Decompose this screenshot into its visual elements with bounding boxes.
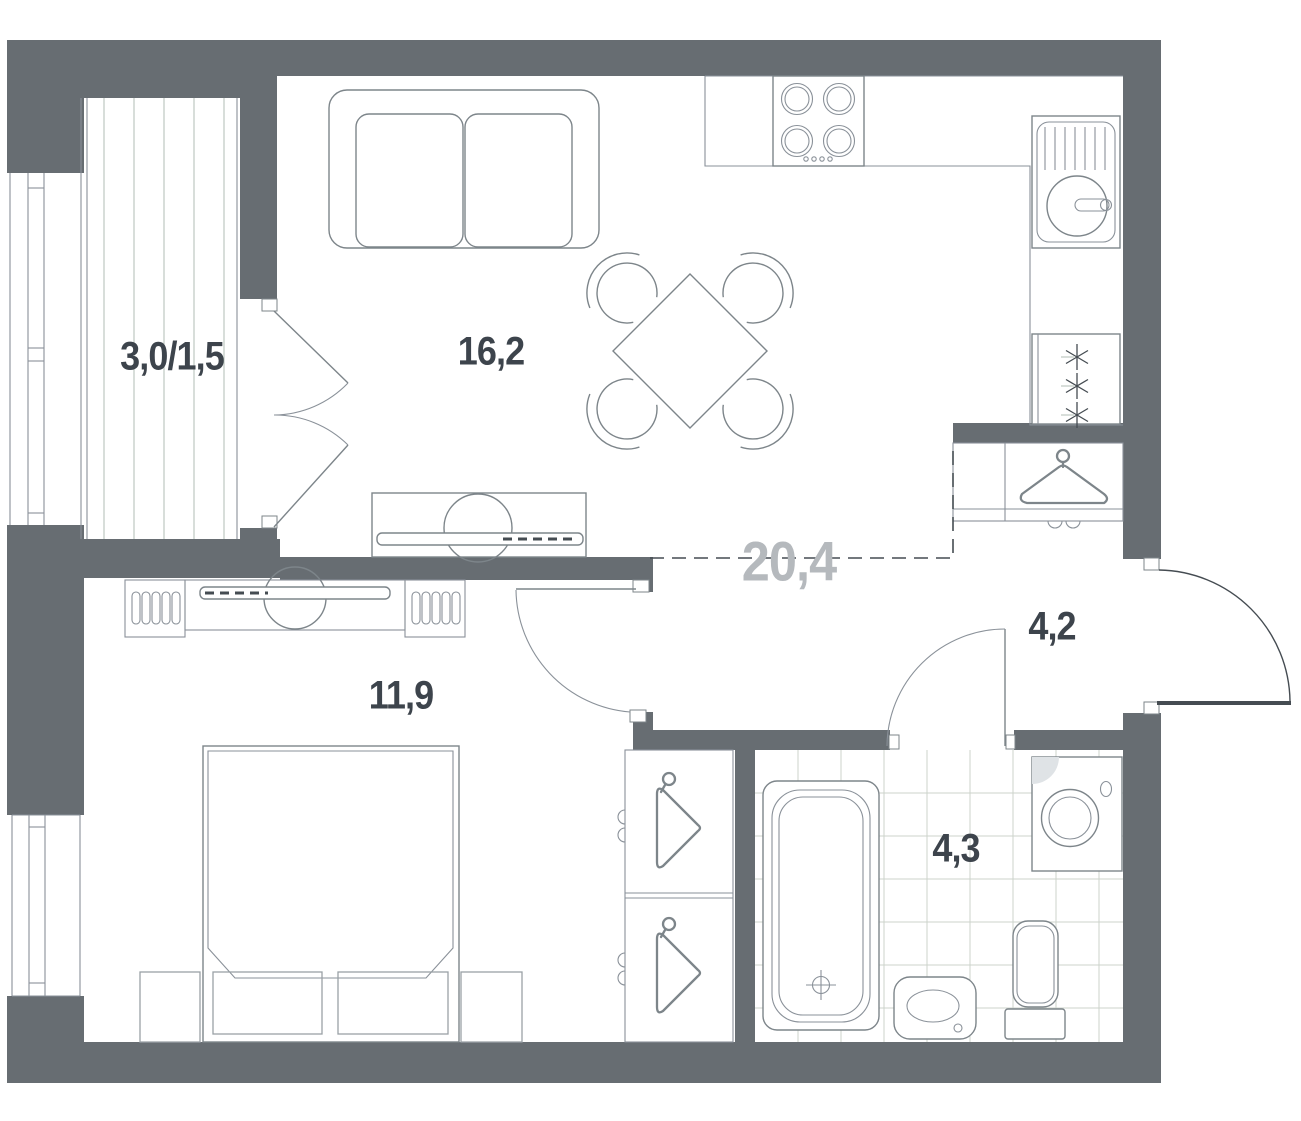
bedroom-door xyxy=(516,580,649,722)
bathroom-door xyxy=(887,629,1015,749)
entrance-door xyxy=(1144,558,1291,714)
tv-console-living xyxy=(372,493,586,562)
bedroom-area-label: 11,9 xyxy=(369,674,433,719)
kitchen-sink xyxy=(1032,116,1120,248)
living-kitchen-area-label: 16,2 xyxy=(458,330,524,375)
hallway-wardrobe xyxy=(953,443,1123,528)
coat-hanger-icon xyxy=(657,918,700,1012)
double-bed xyxy=(203,746,459,1042)
plan-drawing xyxy=(0,0,1301,1121)
balcony-area-label: 3,0/1,5 xyxy=(120,335,224,380)
coat-hanger-icon xyxy=(657,773,700,867)
hallway-area-label: 4,2 xyxy=(1028,605,1075,650)
bedroom-wardrobe xyxy=(618,750,733,1042)
dining-table xyxy=(613,274,767,428)
balcony-glazing-window xyxy=(10,173,44,525)
bedroom-window xyxy=(12,815,80,996)
dining-table-set xyxy=(573,239,807,463)
refrigerator xyxy=(1032,334,1120,428)
balcony-floor-planks xyxy=(81,98,237,539)
combined-area-total-label: 20,4 xyxy=(742,529,837,594)
washing-machine xyxy=(1032,757,1122,871)
washbasin xyxy=(894,977,976,1039)
balcony-french-doors xyxy=(262,299,348,528)
toilet xyxy=(1005,921,1065,1039)
cooktop xyxy=(773,76,864,166)
bathtub xyxy=(763,781,879,1030)
floor-plan: 3,0/1,5 16,2 20,4 11,9 4,2 4,3 xyxy=(0,0,1301,1121)
bathroom-area-label: 4,3 xyxy=(932,827,979,872)
sofa xyxy=(329,90,599,248)
coat-hanger-icon xyxy=(1021,450,1107,503)
